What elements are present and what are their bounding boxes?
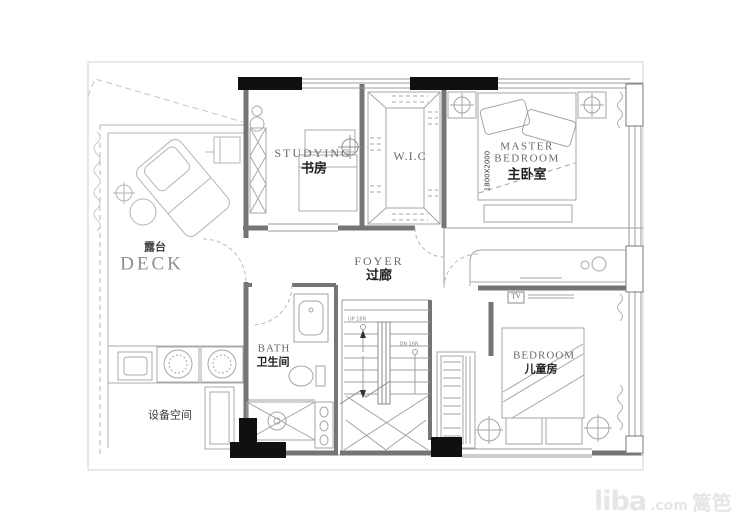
room-label-deck-en: DECK bbox=[120, 255, 184, 274]
room-label-kids-en: BEDROOM bbox=[513, 351, 575, 362]
room-label-bath-en: BATH bbox=[258, 344, 291, 355]
room-label-foyer-zh: 过廊 bbox=[366, 270, 392, 283]
room-label-studying-zh: 书房 bbox=[301, 163, 327, 176]
curtains bbox=[618, 92, 623, 430]
lamp-icon bbox=[475, 416, 503, 444]
plant-icon bbox=[113, 182, 135, 204]
lamp-icon bbox=[584, 414, 612, 442]
watermark: liba .com 篱笆网 bbox=[594, 486, 750, 523]
master-furniture bbox=[448, 92, 626, 286]
watermark-site-name: 篱笆网 bbox=[692, 487, 750, 523]
room-label-foyer-en: FOYER bbox=[354, 255, 403, 267]
fan-icon bbox=[268, 412, 286, 430]
room-label-wic: W.I.C bbox=[393, 150, 426, 162]
tv-label: TV bbox=[511, 294, 520, 301]
roof-overhang-line bbox=[88, 79, 243, 122]
stairs bbox=[340, 310, 430, 450]
room-label-master-en1: MASTER bbox=[500, 142, 554, 153]
stairs-down-label: DN 16R bbox=[399, 343, 418, 348]
bath-door-arc bbox=[252, 285, 292, 325]
watermark-brand: liba bbox=[594, 486, 646, 517]
room-label-equipment: 设备空间 bbox=[148, 410, 192, 421]
washer-right bbox=[201, 347, 243, 382]
windows bbox=[268, 79, 641, 457]
bath-furniture bbox=[247, 294, 333, 448]
watermark-suffix: .com bbox=[650, 498, 688, 514]
stairs-up-label: UP 16R bbox=[348, 318, 366, 323]
dresser-counter bbox=[470, 250, 626, 286]
room-label-bath-zh: 卫生间 bbox=[257, 357, 290, 368]
walls bbox=[243, 84, 641, 455]
lamp-icon bbox=[450, 93, 474, 117]
hatch-column bbox=[250, 128, 266, 213]
deck-area bbox=[94, 125, 246, 455]
deck-table bbox=[130, 199, 156, 225]
room-label-master-zh: 主卧室 bbox=[507, 169, 546, 182]
washer-left bbox=[157, 347, 199, 382]
room-label-deck-zh: 露台 bbox=[144, 242, 166, 253]
deck-door-arc bbox=[203, 239, 246, 282]
room-label-kids-zh: 儿童房 bbox=[525, 364, 558, 375]
bed-dimension-label: 1800X2000 bbox=[485, 151, 492, 191]
wic-door-arc bbox=[415, 228, 444, 257]
kids-door-arc bbox=[444, 254, 478, 288]
deck-cabinet bbox=[214, 137, 240, 163]
floor-plan-page: STUDYING 书房 W.I.C MASTER BEDROOM 主卧室 180… bbox=[0, 0, 750, 523]
lamp-icon bbox=[580, 93, 604, 117]
bed-bench bbox=[484, 205, 572, 222]
equipment-area bbox=[108, 346, 243, 449]
wardrobe bbox=[437, 352, 475, 448]
room-label-studying-en: STUDYING bbox=[274, 147, 351, 159]
tall-cabinet bbox=[205, 387, 234, 449]
room-label-master-en2: BEDROOM bbox=[494, 154, 560, 165]
toilet bbox=[289, 366, 313, 386]
